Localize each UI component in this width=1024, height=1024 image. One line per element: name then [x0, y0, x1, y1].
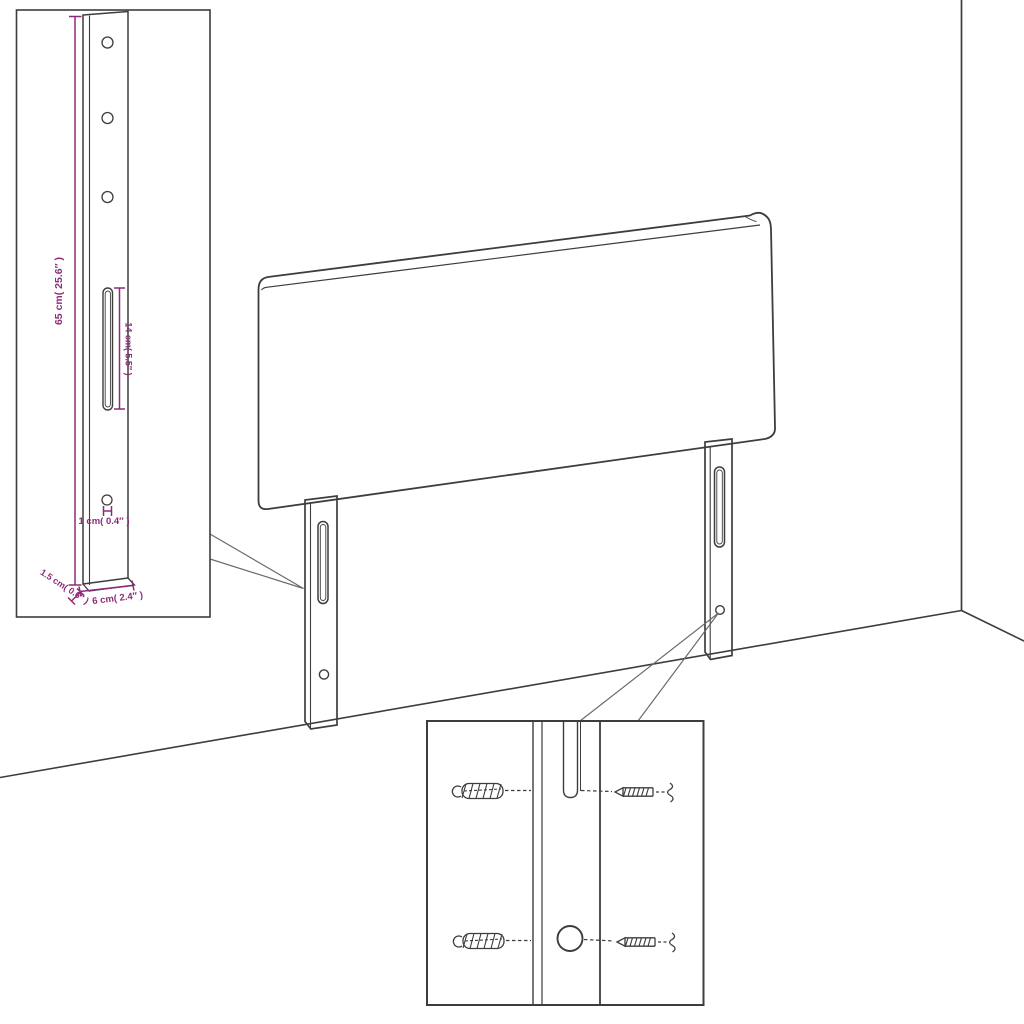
- hardware-inset-content: [452, 714, 675, 1005]
- callout-lines-hardware-inset: [580, 613, 719, 721]
- diagram-canvas: 65 cm( 25.6″ ) 14 cm( 5.5″ ) 1 cm( 0.4″ …: [0, 0, 1024, 1024]
- bracket-hole-lower: [102, 192, 113, 203]
- leg-closeup-slot: [564, 714, 578, 798]
- floor-line-left: [0, 611, 962, 778]
- screw-guide-dash-top: [581, 791, 612, 792]
- dimension-label-width: 6 cm( 2.4″ ): [92, 590, 144, 607]
- hardware-inset: [427, 714, 704, 1005]
- headboard-assembly-diagram: 65 cm( 25.6″ ) 14 cm( 5.5″ ) 1 cm( 0.4″ …: [0, 0, 1024, 1024]
- callout-line-left: [580, 613, 719, 721]
- left-leg-hole: [319, 670, 328, 679]
- floor-line-right: [962, 611, 1024, 642]
- bracket-hole-middle: [102, 113, 113, 124]
- callout-line-upper: [210, 534, 304, 589]
- room-perspective: [0, 0, 1024, 778]
- headboard-panel: [259, 213, 776, 509]
- screw-icon-top: [615, 783, 673, 802]
- left-leg-slot-inner: [320, 525, 326, 601]
- left-leg-slot: [318, 522, 328, 604]
- callout-line-lower: [210, 559, 304, 589]
- screw-icon-bottom: [617, 933, 675, 952]
- bracket-inset: 65 cm( 25.6″ ) 14 cm( 5.5″ ) 1 cm( 0.4″ …: [17, 10, 211, 617]
- bracket-screw-hole: [102, 495, 112, 505]
- dimension-line-hole-diameter: [104, 506, 112, 516]
- right-leg-slot-inner: [717, 470, 723, 544]
- leg-closeup-hole: [558, 926, 583, 951]
- headboard-corner-roll-edge: [745, 217, 757, 222]
- callout-lines-bracket-inset: [210, 534, 304, 589]
- right-leg-slot: [715, 467, 725, 547]
- bracket-hole-top: [102, 37, 113, 48]
- wall-anchor-icon-bottom: [453, 934, 504, 949]
- bracket-slot-inner: [105, 291, 110, 407]
- bracket-slot: [103, 288, 113, 410]
- screw-guide-dash-bottom: [584, 940, 614, 942]
- right-leg-hole: [716, 606, 725, 615]
- headboard-top-inner-edge: [262, 225, 761, 290]
- dimension-label-height: 65 cm( 25.6″ ): [53, 257, 65, 325]
- left-leg: [305, 496, 337, 729]
- headboard-panel-outline: [259, 213, 776, 509]
- left-leg-body: [305, 496, 337, 729]
- wall-anchor-icon-top: [452, 784, 503, 799]
- dimension-label-slot: 14 cm( 5.5″ ): [124, 322, 134, 375]
- bracket-bar: [83, 12, 135, 592]
- dimension-label-hole-diameter: 1 cm( 0.4″ ): [78, 516, 129, 527]
- hardware-inset-frame: [427, 721, 704, 1005]
